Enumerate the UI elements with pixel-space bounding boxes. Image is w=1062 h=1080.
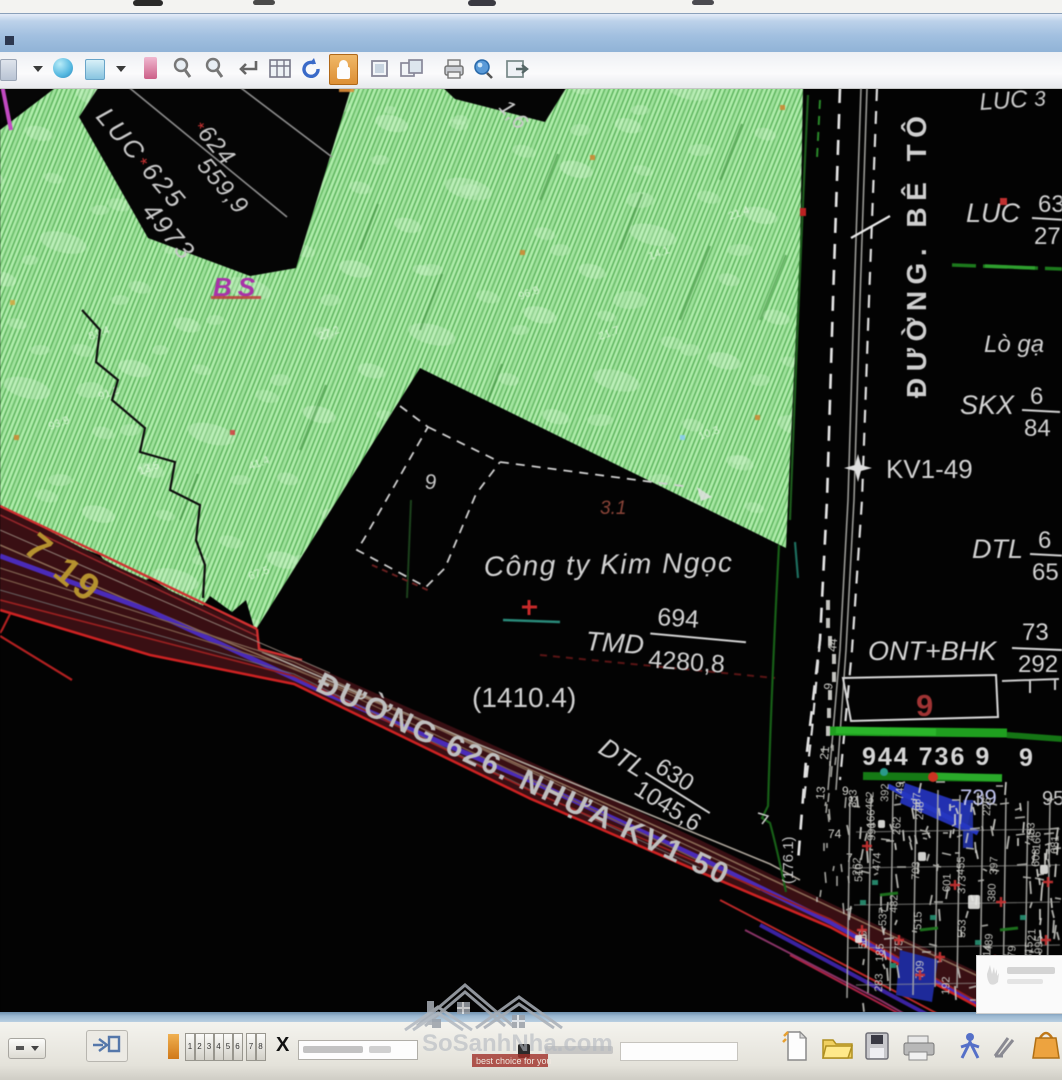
svg-text:482: 482	[888, 894, 901, 913]
svg-text:944 736 9: 944 736 9	[862, 743, 991, 771]
svg-text:Lò gạ: Lò gạ	[984, 331, 1044, 358]
svg-text:489: 489	[983, 933, 996, 952]
svg-text:474: 474	[871, 852, 884, 871]
svg-text:4280,8: 4280,8	[648, 645, 726, 678]
svg-text:6: 6	[1038, 527, 1051, 554]
svg-text:192: 192	[940, 976, 953, 995]
svg-text:3.1: 3.1	[600, 498, 626, 519]
svg-text:84: 84	[1024, 415, 1051, 442]
svg-text:TMD: TMD	[585, 626, 645, 660]
svg-text:63: 63	[1038, 191, 1062, 218]
svg-text:9: 9	[916, 688, 933, 723]
svg-text:9: 9	[1019, 744, 1033, 772]
svg-text:608: 608	[1030, 848, 1043, 867]
svg-text:553: 553	[956, 919, 969, 938]
svg-text:333: 333	[847, 789, 860, 808]
svg-text:(1410.4): (1410.4)	[472, 682, 576, 713]
svg-text:21: 21	[1026, 928, 1038, 941]
svg-text:13: 13	[813, 785, 828, 800]
svg-text:SKX: SKX	[960, 390, 1015, 420]
svg-text:226: 226	[981, 797, 994, 816]
svg-text:27: 27	[1034, 223, 1061, 250]
svg-text:166: 166	[1031, 831, 1044, 850]
svg-text:749: 749	[894, 781, 907, 800]
svg-text:KV1-49: KV1-49	[886, 454, 973, 484]
svg-text:Công ty Kim Ngọc: Công ty Kim Ngọc	[484, 547, 734, 582]
svg-text:455: 455	[955, 856, 968, 875]
svg-text:537: 537	[877, 907, 890, 926]
svg-text:681: 681	[1049, 835, 1062, 854]
svg-text:LUC: LUC	[966, 198, 1021, 228]
svg-text:694: 694	[657, 603, 701, 634]
svg-text:392: 392	[879, 783, 892, 802]
svg-text:ĐƯỜNG. BÊ TÔ: ĐƯỜNG. BÊ TÔ	[900, 110, 932, 398]
svg-text:262: 262	[891, 816, 904, 835]
svg-text:515: 515	[912, 911, 925, 930]
svg-text:73: 73	[1022, 619, 1049, 646]
svg-text:185: 185	[874, 943, 887, 962]
svg-text:283: 283	[873, 973, 886, 992]
svg-text:380: 380	[986, 883, 999, 902]
svg-text:248: 248	[914, 801, 927, 820]
svg-text:6: 6	[1030, 383, 1043, 410]
svg-text:292: 292	[1018, 651, 1058, 678]
svg-text:44: 44	[825, 637, 840, 652]
svg-text:510: 510	[853, 863, 866, 882]
svg-text:703: 703	[910, 861, 923, 880]
svg-text:65: 65	[1032, 559, 1059, 586]
svg-text:ONT+BHK: ONT+BHK	[868, 636, 997, 666]
svg-text:DTL: DTL	[972, 534, 1023, 564]
svg-text:601: 601	[941, 873, 954, 892]
svg-text:21: 21	[817, 745, 832, 760]
svg-text:166: 166	[865, 809, 878, 828]
svg-text:(176.1): (176.1)	[780, 836, 797, 884]
svg-text:74: 74	[828, 827, 842, 841]
